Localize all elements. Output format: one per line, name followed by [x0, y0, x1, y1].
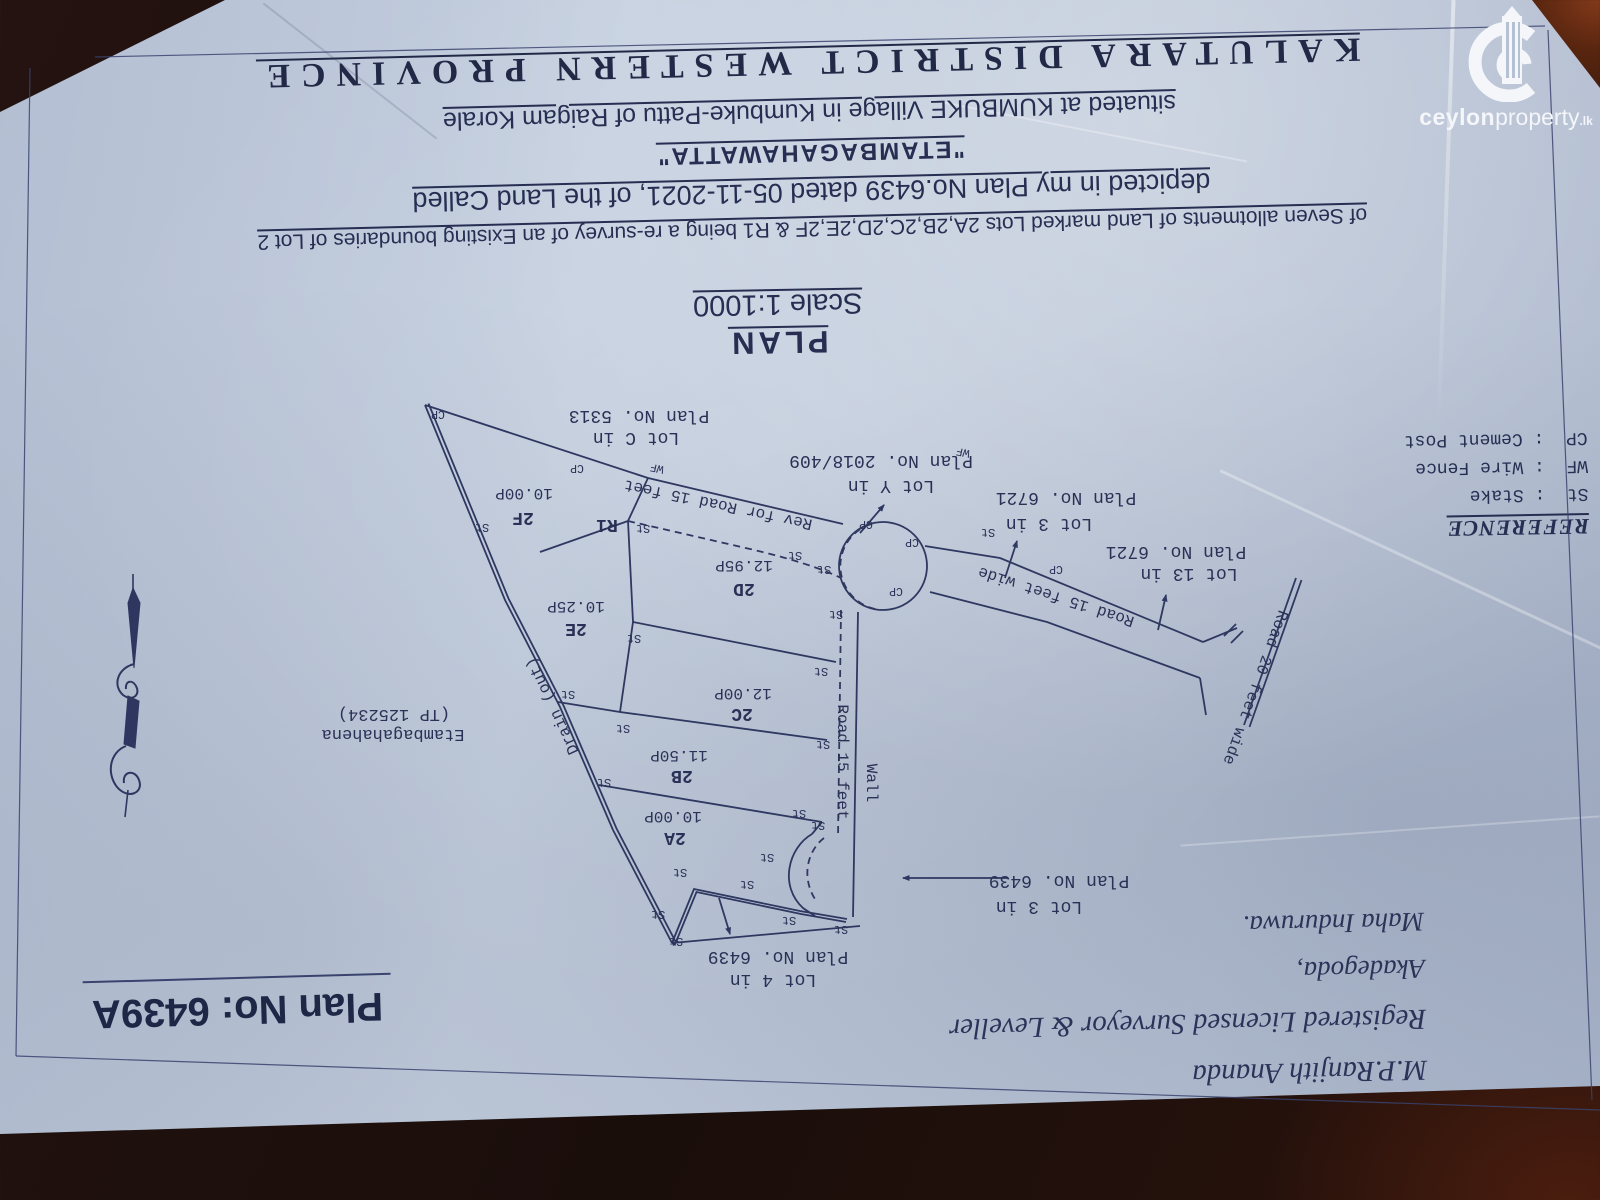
- st-marker: St: [816, 737, 830, 751]
- lot-2f: 2F: [512, 507, 534, 527]
- adj-tp-number: (TP 125234): [338, 704, 450, 723]
- ceylonproperty-watermark: ceylonproperty.lk: [1418, 2, 1594, 134]
- st-marker: St: [760, 850, 774, 864]
- lot-2d: 2D: [733, 578, 755, 598]
- wf-marker: WF: [649, 460, 665, 476]
- drain-label: Drain (out): [522, 654, 583, 757]
- brand-bold: ceylon: [1419, 104, 1495, 130]
- wall-label: Wall: [862, 764, 880, 802]
- north-arrow: [111, 574, 140, 817]
- lot-2e: 2E: [565, 618, 587, 638]
- cp-marker: CP: [889, 584, 903, 597]
- cp-marker: CP: [431, 407, 445, 420]
- wf-marker: WF: [955, 444, 971, 460]
- st-marker: St: [740, 877, 754, 891]
- adj-lot3-6439-plan: Plan No. 6439: [989, 870, 1129, 890]
- brand-tld: .lk: [1579, 114, 1592, 128]
- st-marker: St: [981, 525, 995, 539]
- st-marker: St: [817, 562, 831, 576]
- st-marker: St: [651, 907, 665, 921]
- photo-of-survey-plan: { "watermark": { "brand_bold": "ceylon",…: [0, 0, 1600, 1200]
- brand-light: property: [1495, 104, 1579, 130]
- lot-2a: 2A: [664, 827, 686, 847]
- st-marker: St: [829, 607, 843, 621]
- lot-2a-area: 10.00P: [644, 807, 702, 825]
- st-marker: St: [834, 922, 848, 936]
- lot-2d-area: 12.95P: [715, 556, 773, 574]
- lot-2f-area: 10.00P: [495, 484, 553, 502]
- ceylonproperty-logo-icon: [1418, 2, 1594, 102]
- lot-2b-area: 11.50P: [650, 746, 708, 764]
- st-marker: St: [673, 865, 687, 879]
- adj-lot-c-plan: Plan No. 5313: [569, 405, 709, 425]
- adj-lot3-6721: Lot 3 in: [1006, 513, 1092, 533]
- adj-lot4: Lot 4 in: [730, 969, 816, 989]
- survey-diagram: Lot C in Plan No. 5313 Lot Y in Plan No.…: [0, 0, 1600, 1200]
- adj-lot4-plan: Plan No. 6439: [708, 946, 848, 966]
- adj-lot3-6721-plan: Plan No. 6721: [996, 487, 1136, 507]
- road-15-label: Road 15 feet: [833, 704, 851, 819]
- lot-r1: R1: [596, 514, 618, 534]
- adj-lot-c: Lot C in: [593, 427, 679, 447]
- st-marker: St: [475, 520, 489, 534]
- lot-2b: 2B: [671, 765, 693, 785]
- cp-marker: CP: [1049, 562, 1063, 575]
- cp-marker: CP: [859, 517, 873, 530]
- adj-lot-y-plan: Plan No. 2018/409: [789, 450, 973, 470]
- adj-lot13: Lot 13 in: [1140, 563, 1237, 583]
- adj-lot3-6439: Lot 3 in: [996, 896, 1082, 916]
- st-marker: St: [792, 806, 806, 820]
- lot-2c: 2C: [731, 703, 753, 723]
- st-marker: St: [636, 521, 650, 535]
- st-marker: St: [782, 913, 796, 927]
- adj-lot13-plan: Plan No. 6721: [1106, 541, 1246, 561]
- st-marker: St: [616, 721, 630, 735]
- st-marker: St: [811, 818, 825, 832]
- st-marker: St: [597, 775, 611, 789]
- adj-lot-y: Lot Y in: [848, 475, 934, 495]
- st-marker: St: [561, 687, 575, 701]
- cp-marker: CP: [570, 461, 584, 474]
- st-marker: St: [627, 631, 641, 645]
- st-marker: St: [814, 664, 828, 678]
- adj-etambagahahena: Etambagahahena: [322, 724, 465, 743]
- lot-2c-area: 12.00P: [714, 684, 772, 702]
- st-marker: St: [788, 548, 802, 562]
- st-marker: St: [669, 934, 683, 948]
- cp-marker: CP: [905, 535, 919, 548]
- ceylonproperty-logo-text: ceylonproperty.lk: [1418, 104, 1594, 131]
- label-arrows: [719, 505, 1166, 934]
- lot-2e-area: 10.25P: [547, 597, 605, 615]
